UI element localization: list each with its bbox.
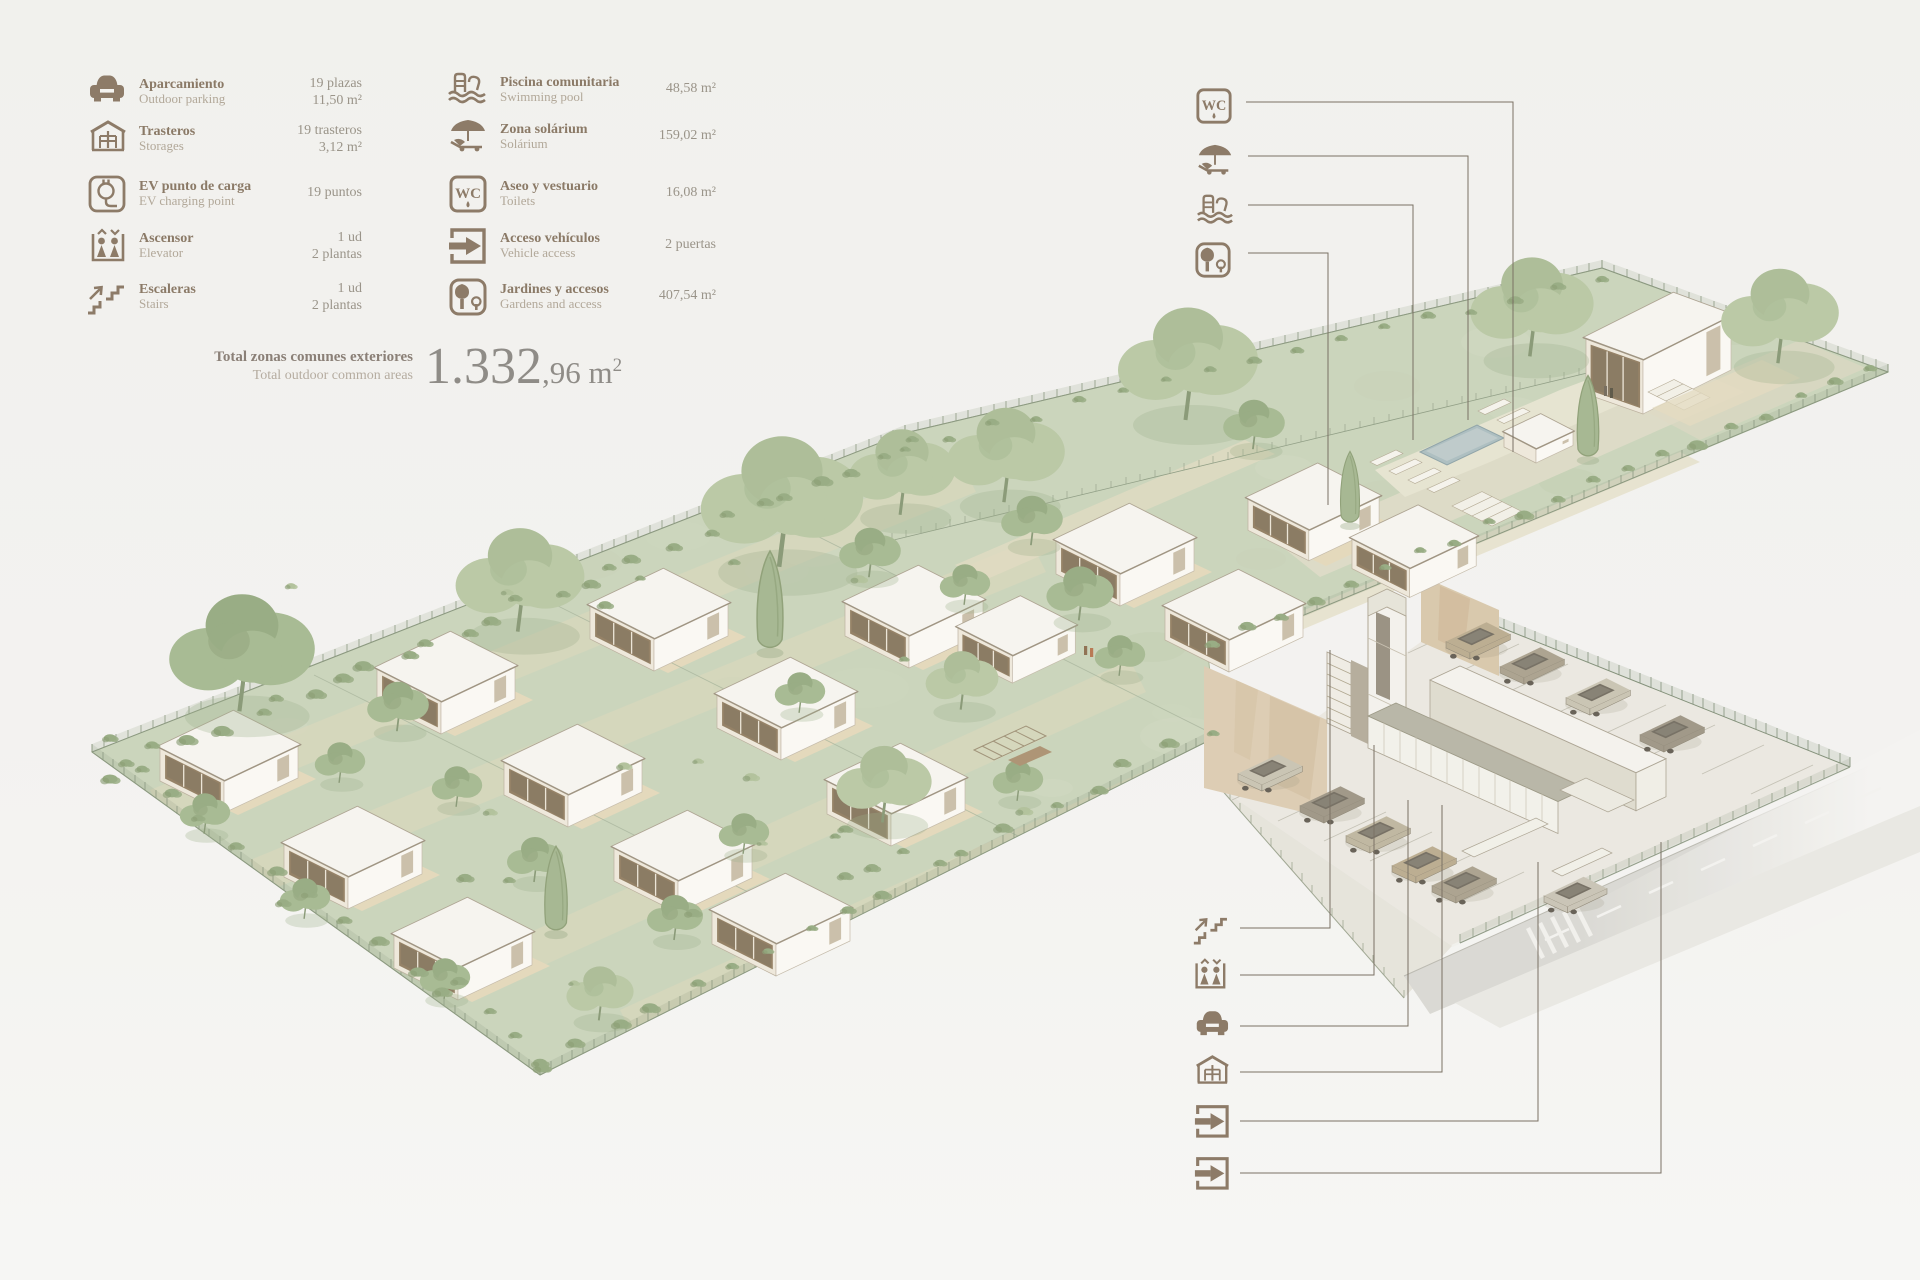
- svg-text:Total zonas comunes exteriores: Total zonas comunes exteriores: [214, 349, 413, 365]
- svg-text:2 puertas: 2 puertas: [665, 237, 716, 252]
- svg-text:Total outdoor common areas: Total outdoor common areas: [253, 368, 413, 383]
- svg-text:11,50 m²: 11,50 m²: [312, 93, 362, 108]
- svg-text:Trasteros: Trasteros: [139, 124, 196, 139]
- svg-text:Swimming pool: Swimming pool: [500, 89, 584, 104]
- svg-text:19 puntos: 19 puntos: [307, 185, 362, 200]
- svg-text:Solárium: Solárium: [500, 136, 548, 151]
- svg-text:Piscina comunitaria: Piscina comunitaria: [500, 75, 619, 90]
- svg-text:Zona solárium: Zona solárium: [500, 122, 588, 137]
- svg-text:1 ud: 1 ud: [338, 281, 363, 296]
- svg-text:3,12 m²: 3,12 m²: [319, 140, 362, 155]
- svg-text:159,02 m²: 159,02 m²: [659, 128, 716, 143]
- svg-text:Aseo y vestuario: Aseo y vestuario: [500, 179, 598, 194]
- svg-text:Gardens and access: Gardens and access: [500, 296, 602, 311]
- svg-text:Elevator: Elevator: [139, 245, 184, 260]
- svg-text:Outdoor parking: Outdoor parking: [139, 91, 226, 106]
- svg-text:407,54 m²: 407,54 m²: [659, 288, 716, 303]
- svg-text:Storages: Storages: [139, 138, 184, 153]
- svg-text:Ascensor: Ascensor: [139, 231, 193, 246]
- svg-text:19 plazas: 19 plazas: [310, 76, 362, 91]
- svg-text:Jardines y accesos: Jardines y accesos: [500, 282, 609, 297]
- svg-text:Toilets: Toilets: [500, 193, 535, 208]
- svg-text:Acceso vehículos: Acceso vehículos: [500, 231, 600, 246]
- svg-text:EV punto de carga: EV punto de carga: [139, 179, 251, 194]
- svg-text:19 trasteros: 19 trasteros: [297, 123, 362, 138]
- svg-text:Vehicle access: Vehicle access: [500, 245, 575, 260]
- svg-text:Escaleras: Escaleras: [139, 282, 196, 297]
- svg-text:2 plantas: 2 plantas: [312, 247, 362, 262]
- svg-text:48,58 m²: 48,58 m²: [666, 81, 716, 96]
- svg-text:1 ud: 1 ud: [338, 230, 363, 245]
- svg-text:16,08 m²: 16,08 m²: [666, 185, 716, 200]
- svg-text:Aparcamiento: Aparcamiento: [139, 77, 224, 92]
- svg-text:Stairs: Stairs: [139, 296, 169, 311]
- svg-text:EV charging point: EV charging point: [139, 193, 235, 208]
- svg-text:2 plantas: 2 plantas: [312, 298, 362, 313]
